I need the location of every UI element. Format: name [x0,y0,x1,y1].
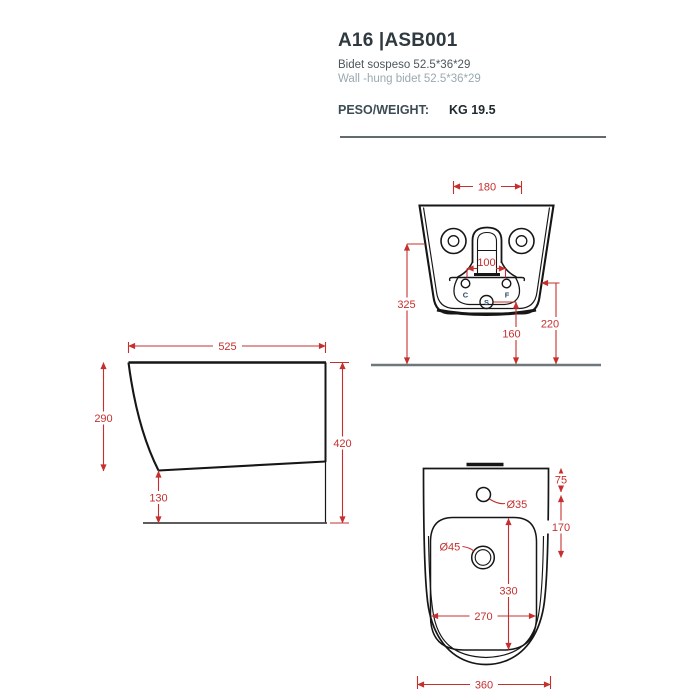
dim-325-label: 325 [397,299,415,311]
dim-130-label: 130 [149,493,167,505]
header: A16 |ASB001 Bidet sospeso 52.5*36*29 Wal… [338,30,638,117]
dim-330-label: 330 [499,586,517,598]
dim-tap-to-drain: 170 [547,496,575,558]
dim-tap-hole-diameter: Ø35 [490,499,528,511]
dim-bottom-clearance: 130 [145,471,173,523]
dim-overall-width: 360 [418,676,551,692]
dim-180-label: 180 [478,182,496,194]
plan-view: 75 170 Ø35 Ø45 330 [418,465,576,692]
dim-tap-hole-offset: 75 [550,469,572,493]
spec-sheet-page: A16 |ASB001 Bidet sospeso 52.5*36*29 Wal… [0,0,700,700]
description-italian: Bidet sospeso 52.5*36*29 [338,58,638,72]
weight-label: PESO/WEIGHT: [338,103,429,117]
header-divider [340,136,606,138]
drain-hole [472,546,495,569]
tap-hole [477,488,491,502]
dim-75-label: 75 [555,475,567,487]
fixing-hole-left [441,229,466,254]
hot-water-hole [502,279,511,288]
dim-front-height: 290 [90,363,118,472]
dim-290-label: 290 [94,413,112,425]
dim-360-label: 360 [475,680,493,692]
dim-depth: 525 [129,340,326,354]
basin-outline [431,518,537,651]
model-code: A16 |ASB001 [338,30,638,52]
dim-220-label: 220 [541,319,559,331]
dim-fixing-holes-height: 325 [393,244,424,364]
dim-160-label: 160 [502,329,520,341]
hot-port-label: F [505,291,510,300]
fixing-hole-right [509,229,534,254]
dim-525-label: 525 [218,341,236,353]
dim-d45-label: Ø45 [440,542,461,554]
weight-row: PESO/WEIGHT: KG 19.5 [338,103,638,117]
dim-basin-length: 330 [495,519,523,650]
cold-port-label: C [463,291,469,300]
dim-170-label: 170 [552,522,570,534]
description-english: Wall -hung bidet 52.5*36*29 [338,72,638,86]
dim-overall-height: 420 [329,363,357,524]
dim-fixing-holes-spacing: 180 [454,180,522,194]
dim-420-label: 420 [333,438,351,450]
dim-100-label: 100 [477,257,495,269]
siphon-port-label: S [484,298,489,307]
cold-water-hole [461,279,470,288]
dim-d35-label: Ø35 [507,499,528,511]
side-view: 525 290 130 420 [90,340,357,524]
rear-view: C F S 180 100 [371,180,601,365]
weight-value: KG 19.5 [449,103,496,117]
dim-270-label: 270 [474,611,492,623]
dim-drain-diameter: Ø45 [440,542,475,554]
dim-basin-width: 270 [432,610,536,624]
